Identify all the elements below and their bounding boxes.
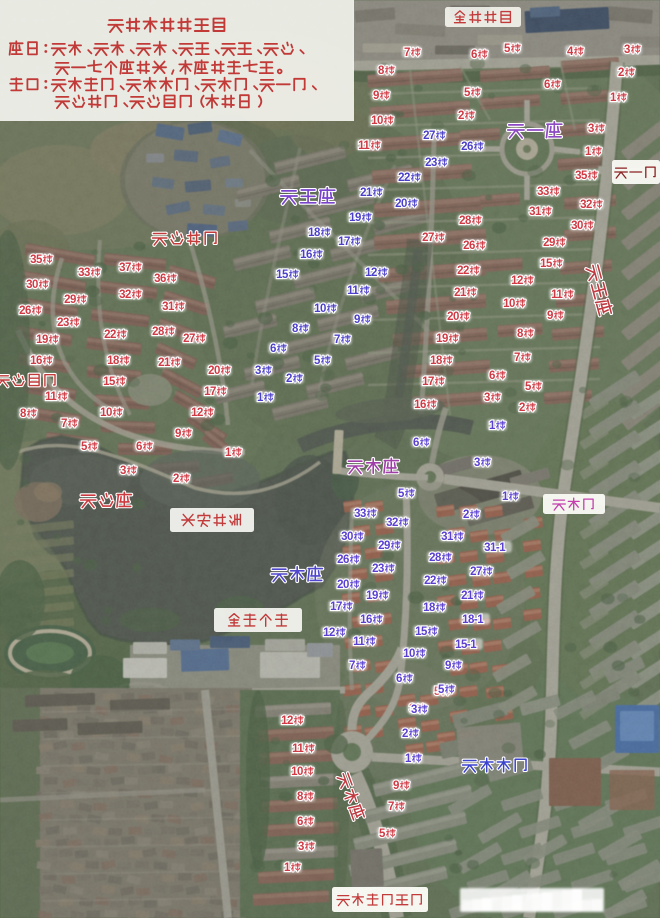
svg-text:3: 3 bbox=[588, 123, 594, 135]
svg-text:6: 6 bbox=[544, 79, 550, 91]
svg-text:20: 20 bbox=[337, 579, 349, 591]
svg-text:15: 15 bbox=[276, 269, 289, 281]
svg-text:27: 27 bbox=[183, 333, 195, 345]
svg-text:3: 3 bbox=[474, 457, 480, 469]
svg-text:3: 3 bbox=[298, 841, 304, 853]
svg-text:6: 6 bbox=[396, 673, 402, 685]
svg-text:7: 7 bbox=[404, 47, 410, 59]
svg-text:6: 6 bbox=[270, 343, 276, 355]
svg-text:10: 10 bbox=[403, 648, 415, 660]
svg-text:16: 16 bbox=[30, 355, 42, 367]
svg-text:19: 19 bbox=[349, 212, 361, 224]
svg-text:6: 6 bbox=[489, 370, 495, 382]
svg-text:9: 9 bbox=[175, 428, 181, 440]
svg-text:35: 35 bbox=[30, 254, 43, 266]
svg-text:20: 20 bbox=[395, 198, 407, 210]
svg-text:31-1: 31-1 bbox=[484, 542, 506, 554]
svg-text:21: 21 bbox=[461, 590, 474, 602]
svg-text:15: 15 bbox=[103, 376, 116, 388]
svg-text:12: 12 bbox=[365, 267, 377, 279]
svg-text:11: 11 bbox=[45, 391, 57, 403]
svg-text:30: 30 bbox=[26, 279, 38, 291]
svg-text:22: 22 bbox=[104, 329, 116, 341]
svg-text:2: 2 bbox=[618, 67, 624, 79]
svg-text:29: 29 bbox=[378, 540, 390, 552]
svg-text:36: 36 bbox=[154, 273, 166, 285]
svg-text:29: 29 bbox=[64, 294, 76, 306]
svg-text:7: 7 bbox=[388, 801, 394, 813]
svg-text:7: 7 bbox=[61, 418, 67, 430]
svg-text:26: 26 bbox=[463, 240, 475, 252]
svg-text:11: 11 bbox=[353, 636, 365, 648]
svg-text:23: 23 bbox=[425, 157, 437, 169]
svg-text:26: 26 bbox=[19, 305, 31, 317]
svg-text:17: 17 bbox=[204, 386, 216, 398]
svg-text:10: 10 bbox=[371, 115, 383, 127]
svg-text:6: 6 bbox=[413, 437, 419, 449]
svg-text:16: 16 bbox=[300, 249, 312, 261]
svg-text:22: 22 bbox=[457, 265, 469, 277]
svg-text:3: 3 bbox=[484, 392, 490, 404]
svg-text:10: 10 bbox=[291, 766, 303, 778]
svg-text:10: 10 bbox=[100, 407, 112, 419]
svg-text:9: 9 bbox=[373, 90, 379, 102]
svg-text:3: 3 bbox=[411, 704, 417, 716]
svg-text:11: 11 bbox=[347, 285, 359, 297]
svg-text:2: 2 bbox=[519, 402, 525, 414]
svg-text:26: 26 bbox=[337, 554, 349, 566]
svg-text:21: 21 bbox=[454, 287, 467, 299]
svg-text:32: 32 bbox=[119, 289, 131, 301]
svg-text:29: 29 bbox=[543, 237, 555, 249]
svg-text:22: 22 bbox=[398, 172, 410, 184]
svg-text:12: 12 bbox=[191, 407, 203, 419]
svg-text:22: 22 bbox=[424, 575, 436, 587]
svg-text:12: 12 bbox=[281, 715, 293, 727]
svg-text:6: 6 bbox=[297, 816, 303, 828]
svg-text:31: 31 bbox=[529, 206, 542, 218]
svg-text:35: 35 bbox=[575, 170, 588, 182]
svg-text:19: 19 bbox=[366, 590, 378, 602]
svg-text:20: 20 bbox=[447, 311, 459, 323]
svg-text:27: 27 bbox=[422, 232, 434, 244]
svg-text:31: 31 bbox=[441, 531, 454, 543]
svg-text:2: 2 bbox=[402, 728, 408, 740]
svg-text:6: 6 bbox=[136, 441, 142, 453]
svg-text:28: 28 bbox=[429, 552, 442, 564]
svg-text:15-1: 15-1 bbox=[455, 639, 477, 651]
svg-text:17: 17 bbox=[330, 601, 342, 613]
svg-text:31: 31 bbox=[162, 301, 175, 313]
svg-text:7: 7 bbox=[349, 660, 355, 672]
svg-text:30: 30 bbox=[571, 220, 583, 232]
svg-text:37: 37 bbox=[119, 262, 131, 274]
svg-text:11: 11 bbox=[358, 140, 370, 152]
svg-text:6: 6 bbox=[471, 49, 477, 61]
svg-text:9: 9 bbox=[445, 660, 451, 672]
svg-text:28: 28 bbox=[459, 215, 472, 227]
svg-text:11: 11 bbox=[551, 289, 563, 301]
svg-text:11: 11 bbox=[292, 743, 304, 755]
svg-text:19: 19 bbox=[36, 334, 48, 346]
svg-text:15: 15 bbox=[415, 626, 428, 638]
svg-text:18: 18 bbox=[107, 355, 120, 367]
svg-text:9: 9 bbox=[354, 314, 360, 326]
svg-text:12: 12 bbox=[323, 627, 335, 639]
svg-text:15: 15 bbox=[540, 258, 553, 270]
svg-text:19: 19 bbox=[436, 333, 448, 345]
svg-text:17: 17 bbox=[422, 376, 434, 388]
svg-text:21: 21 bbox=[360, 187, 373, 199]
svg-text:17: 17 bbox=[338, 236, 350, 248]
svg-text:33: 33 bbox=[537, 186, 549, 198]
svg-text:23: 23 bbox=[57, 317, 69, 329]
svg-text:3: 3 bbox=[624, 44, 630, 56]
svg-text:9: 9 bbox=[547, 310, 553, 322]
svg-text:16: 16 bbox=[414, 399, 426, 411]
svg-text:12: 12 bbox=[511, 275, 523, 287]
svg-text:18: 18 bbox=[430, 355, 443, 367]
svg-text:30: 30 bbox=[341, 531, 353, 543]
svg-text:10: 10 bbox=[503, 298, 515, 310]
svg-text:18: 18 bbox=[308, 227, 321, 239]
svg-text:32: 32 bbox=[386, 517, 398, 529]
svg-text:3: 3 bbox=[255, 365, 261, 377]
svg-text:2: 2 bbox=[286, 373, 292, 385]
svg-text:7: 7 bbox=[514, 352, 520, 364]
svg-text:27: 27 bbox=[423, 130, 435, 142]
svg-text:18-1: 18-1 bbox=[462, 614, 484, 626]
svg-text:16: 16 bbox=[360, 614, 372, 626]
svg-text:2: 2 bbox=[173, 473, 179, 485]
svg-text:7: 7 bbox=[334, 334, 340, 346]
svg-text:33: 33 bbox=[354, 508, 366, 520]
svg-text:21: 21 bbox=[158, 357, 171, 369]
svg-text:33: 33 bbox=[78, 267, 90, 279]
svg-text:32: 32 bbox=[580, 199, 592, 211]
svg-text:3: 3 bbox=[120, 465, 126, 477]
svg-text:26: 26 bbox=[461, 141, 473, 153]
svg-text:18: 18 bbox=[423, 602, 436, 614]
svg-text:23: 23 bbox=[372, 563, 384, 575]
svg-text:10: 10 bbox=[314, 303, 326, 315]
svg-text:2: 2 bbox=[463, 509, 469, 521]
svg-text:9: 9 bbox=[393, 780, 399, 792]
svg-text:27: 27 bbox=[470, 566, 482, 578]
svg-text:28: 28 bbox=[152, 326, 165, 338]
svg-text:2: 2 bbox=[458, 110, 464, 122]
svg-text:20: 20 bbox=[208, 365, 220, 377]
